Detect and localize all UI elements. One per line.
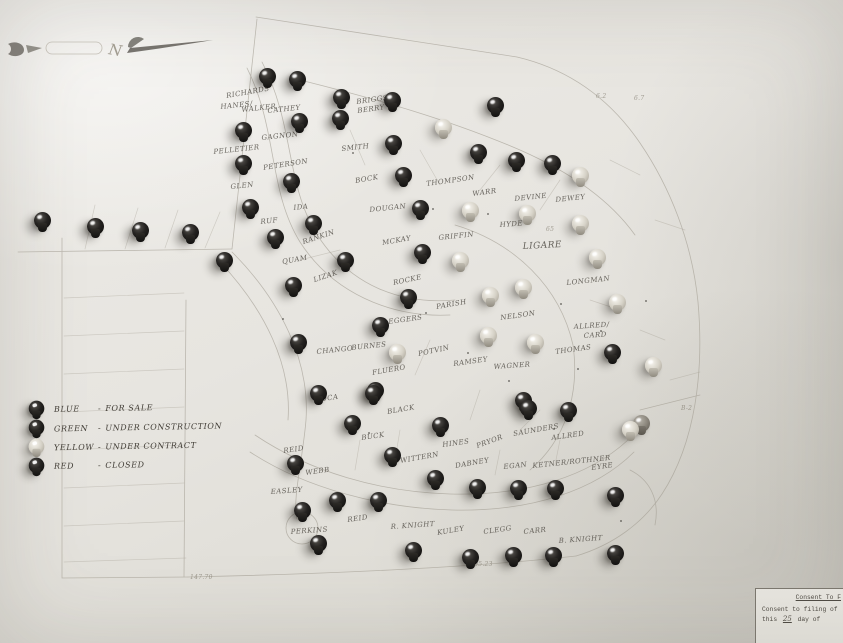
map-pin-dark xyxy=(305,215,322,232)
map-pin-dark xyxy=(365,385,382,402)
map-pin-dark xyxy=(337,252,354,269)
consent-heading: Consent To F xyxy=(762,593,843,603)
lot-name-label: HYDE xyxy=(499,219,523,229)
consent-line2-suffix: day of xyxy=(798,616,821,623)
map-pin-dark xyxy=(607,545,624,562)
map-pin-dark xyxy=(216,252,233,269)
survey-dot xyxy=(282,318,284,320)
map-pin-dark xyxy=(395,167,412,184)
map-pin-dark xyxy=(520,400,537,417)
north-letter: N xyxy=(106,40,124,60)
map-pin-dark xyxy=(384,447,401,464)
map-pin-dark xyxy=(329,492,346,509)
consent-day-value: 25 xyxy=(781,615,794,623)
consent-form-corner: Consent To F Consent to filing of this 2… xyxy=(755,588,843,643)
map-pin-dark xyxy=(290,334,307,351)
map-pin-dark xyxy=(469,479,486,496)
map-pin-dark xyxy=(384,92,401,109)
map-pin-dark xyxy=(432,417,449,434)
survey-dot xyxy=(620,520,622,522)
legend-row: RED-CLOSED xyxy=(28,456,222,475)
legend-row: YELLOW-UNDER CONTRACT xyxy=(28,437,222,456)
map-pin-light xyxy=(519,205,536,222)
map-pin-light xyxy=(480,327,497,344)
legend-status: UNDER CONSTRUCTION xyxy=(105,422,222,433)
map-pin-dark xyxy=(132,222,149,239)
legend-label: BLUE-FOR SALE xyxy=(54,403,153,414)
map-pin-light xyxy=(572,167,589,184)
map-pin-dark xyxy=(560,402,577,419)
map-pin-dark xyxy=(545,547,562,564)
legend-pin-red xyxy=(29,458,45,474)
legend-row: GREEN-UNDER CONSTRUCTION xyxy=(28,418,222,437)
legend-color-name: GREEN xyxy=(54,424,98,434)
map-pin-dark xyxy=(310,385,327,402)
map-pin-dark xyxy=(487,97,504,114)
map-pin-dark xyxy=(427,470,444,487)
dimension-label: 147.70 xyxy=(190,574,213,581)
north-arrow-fletch-left xyxy=(8,42,24,56)
map-pin-dark xyxy=(414,244,431,261)
map-pin-dark xyxy=(385,135,402,152)
lot-name-label: CARD xyxy=(583,330,607,340)
map-pin-light xyxy=(452,252,469,269)
dimension-label: B-2 xyxy=(681,405,692,412)
map-pin-dark xyxy=(505,547,522,564)
legend-separator: - xyxy=(98,461,101,470)
legend-label: GREEN-UNDER CONSTRUCTION xyxy=(54,422,222,434)
legend-color-name: RED xyxy=(54,461,98,471)
legend-status: UNDER CONTRACT xyxy=(105,441,196,452)
map-pin-dark xyxy=(287,455,304,472)
legend-status: CLOSED xyxy=(105,460,144,470)
legend-pin-green xyxy=(29,420,45,436)
map-pin-light xyxy=(482,287,499,304)
map-pin-light xyxy=(645,357,662,374)
lot-name-label: LIGARE xyxy=(522,240,562,252)
map-pin-dark xyxy=(235,155,252,172)
map-pin-dark xyxy=(470,144,487,161)
map-pin-light xyxy=(389,344,406,361)
legend-separator: - xyxy=(98,404,101,413)
pin-color-legend: BLUE-FOR SALEGREEN-UNDER CONSTRUCTIONYEL… xyxy=(28,399,222,475)
survey-dot xyxy=(432,208,434,210)
legend-label: RED-CLOSED xyxy=(54,460,145,471)
map-pin-dark xyxy=(462,549,479,566)
map-pin-light xyxy=(435,119,452,136)
legend-separator: - xyxy=(98,424,101,433)
legend-pin-yellow xyxy=(29,439,45,455)
map-pin-light xyxy=(622,421,639,438)
survey-dot xyxy=(352,152,354,154)
map-pin-light xyxy=(527,334,544,351)
map-pin-dark xyxy=(285,277,302,294)
lot-name-label: IDA xyxy=(293,202,309,212)
map-pin-dark xyxy=(289,71,306,88)
survey-dot xyxy=(577,368,579,370)
map-pin-dark xyxy=(310,535,327,552)
map-pin-dark xyxy=(259,68,276,85)
survey-dot xyxy=(508,380,510,382)
map-pin-dark xyxy=(547,480,564,497)
map-pin-dark xyxy=(412,200,429,217)
survey-dot xyxy=(467,352,469,354)
plat-map-photo: N RICHARDSHANES/WALKERCATHEYBRIGGS/BERRY… xyxy=(0,0,843,643)
survey-dot xyxy=(560,303,562,305)
map-pin-dark xyxy=(344,415,361,432)
legend-pin-blue xyxy=(29,401,45,417)
legend-separator: - xyxy=(98,442,101,451)
consent-line1: Consent to filing of xyxy=(762,605,843,615)
map-pin-dark xyxy=(508,152,525,169)
map-pin-dark xyxy=(604,344,621,361)
survey-dot xyxy=(368,432,370,434)
map-pin-dark xyxy=(333,89,350,106)
map-pin-dark xyxy=(544,155,561,172)
map-pin-dark xyxy=(182,224,199,241)
survey-dot xyxy=(425,312,427,314)
map-pin-light xyxy=(462,202,479,219)
map-pin-dark xyxy=(267,229,284,246)
map-pin-dark xyxy=(510,480,527,497)
survey-dot xyxy=(487,213,489,215)
dimension-label: 6.2 xyxy=(596,93,606,100)
map-pin-dark xyxy=(400,289,417,306)
map-pin-dark xyxy=(372,317,389,334)
north-arrow: N xyxy=(2,30,217,72)
map-pin-dark xyxy=(332,110,349,127)
map-pin-dark xyxy=(242,199,259,216)
map-pin-dark xyxy=(405,542,422,559)
legend-color-name: YELLOW xyxy=(54,442,98,452)
pins-layer xyxy=(0,0,843,643)
map-pin-dark xyxy=(235,122,252,139)
legend-label: YELLOW-UNDER CONTRACT xyxy=(54,441,197,452)
map-pin-light xyxy=(609,294,626,311)
map-pin-dark xyxy=(291,113,308,130)
map-pin-dark xyxy=(87,218,104,235)
map-pin-dark xyxy=(294,502,311,519)
legend-color-name: BLUE xyxy=(54,404,98,414)
consent-line2-prefix: this xyxy=(762,616,777,623)
consent-line2: this 25 day of xyxy=(762,615,843,625)
map-pin-dark xyxy=(370,492,387,509)
map-pin-light xyxy=(572,215,589,232)
survey-dot xyxy=(645,300,647,302)
dimension-label: 65 xyxy=(546,226,554,233)
map-pin-dark xyxy=(34,212,51,229)
survey-dot xyxy=(600,330,602,332)
legend-row: BLUE-FOR SALE xyxy=(28,399,222,418)
map-pin-light xyxy=(589,249,606,266)
map-pin-light xyxy=(515,279,532,296)
legend-status: FOR SALE xyxy=(105,403,153,413)
map-pin-dark xyxy=(283,173,300,190)
dimension-label: 6.7 xyxy=(634,95,644,102)
map-pin-dark xyxy=(607,487,624,504)
survey-dot xyxy=(553,428,555,430)
